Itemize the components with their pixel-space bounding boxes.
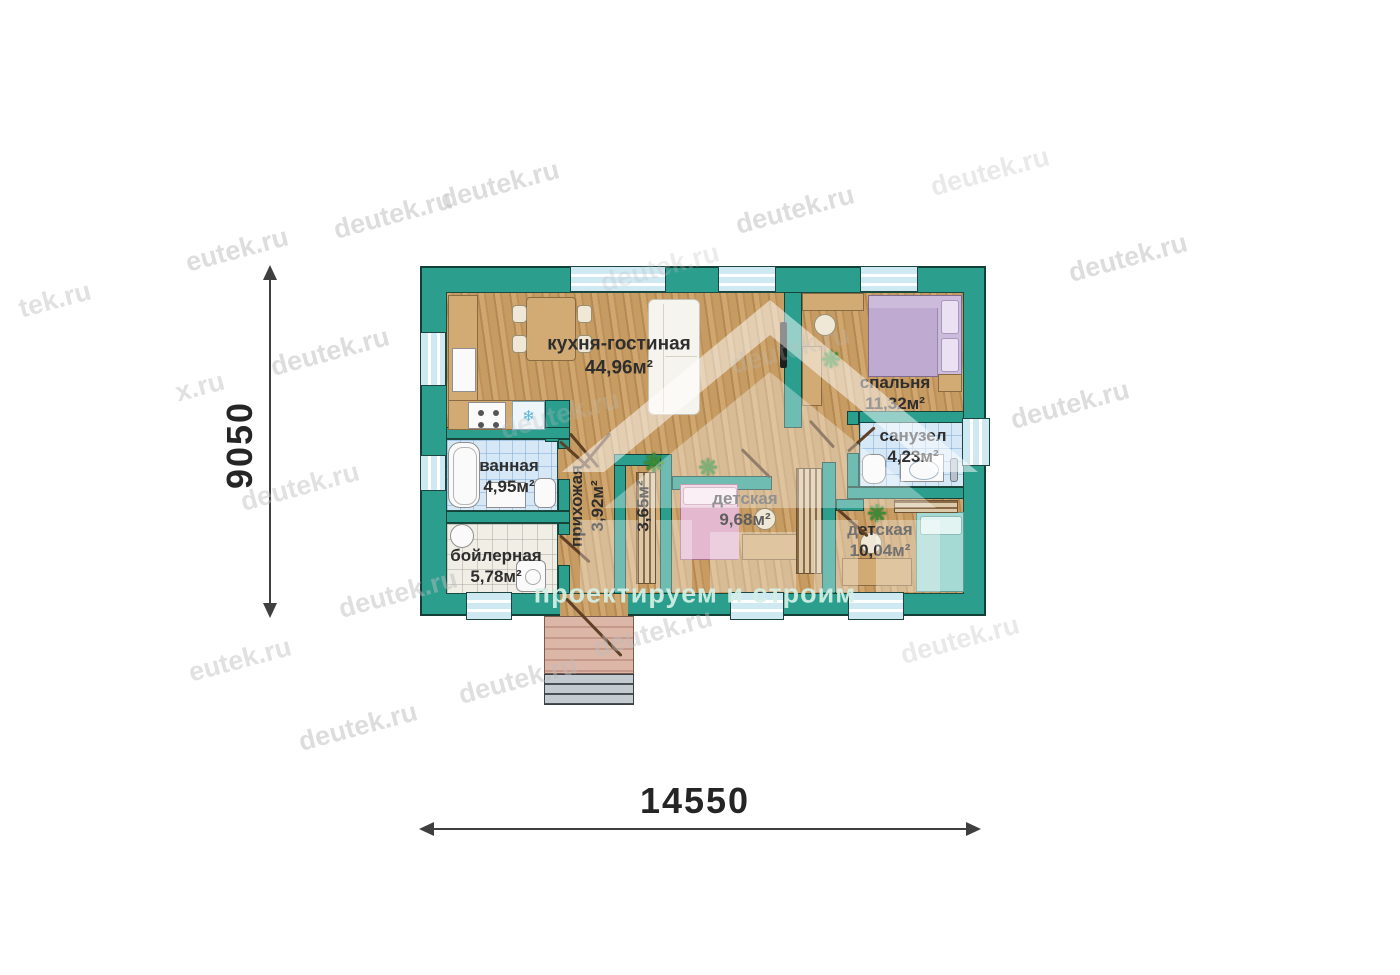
- dimension-height: 9050: [219, 401, 261, 489]
- window: [730, 592, 784, 620]
- watermark-text: deutek.ru: [897, 609, 1022, 670]
- watermark-text: deutek.ru: [1065, 227, 1190, 288]
- wall-wc-left-a: [847, 411, 859, 425]
- desk: [802, 293, 864, 311]
- dimension-width: 14550: [640, 780, 750, 822]
- window: [718, 266, 776, 292]
- room-label-kids1: детская9,68м²: [712, 488, 777, 531]
- plant-icon: ❋: [821, 346, 841, 374]
- chair: [814, 314, 836, 336]
- window: [420, 455, 446, 491]
- wall-kids1-right: [822, 462, 836, 594]
- bed: [916, 512, 964, 592]
- stove-icon: [468, 402, 506, 429]
- window: [420, 332, 446, 386]
- wardrobe: [796, 468, 822, 574]
- shower-stand: [950, 458, 958, 482]
- porch-steps: [544, 674, 634, 705]
- room-label-bedroom: спальня11,32м²: [860, 372, 931, 415]
- arrow-left-icon: [419, 822, 434, 836]
- house-outline: ❄: [420, 266, 986, 616]
- room-label-boiler: бойлерная5,78м²: [450, 545, 541, 588]
- bed: [868, 295, 962, 377]
- room-label-closet: 3,65м²: [632, 480, 653, 531]
- floor-plan-page: ❄: [0, 0, 1400, 975]
- arrow-up-icon: [263, 265, 277, 280]
- room-label-wc: санузел4,23м²: [879, 425, 946, 468]
- tv: [780, 322, 787, 368]
- room-name: кухня-гостиная: [547, 332, 690, 356]
- window: [848, 592, 904, 620]
- sink: [452, 348, 476, 392]
- watermark-text: deutek.ru: [437, 154, 562, 215]
- snowflake-icon: ❄: [522, 408, 535, 425]
- watermark-text: eutek.ru: [185, 631, 294, 688]
- wall-wc-bottom: [847, 487, 964, 499]
- wall-hall-closet: [614, 454, 626, 594]
- nightstand: [938, 374, 962, 392]
- arrow-right-icon: [966, 822, 981, 836]
- chair: [512, 305, 527, 323]
- watermark-text: deutek.ru: [1007, 374, 1132, 435]
- plant-icon: ❋: [698, 454, 718, 482]
- hall-cabinet: [802, 346, 822, 406]
- watermark-text: deutek.ru: [732, 179, 857, 240]
- watermark-text: deutek.ru: [267, 321, 392, 382]
- watermark-text: deutek.ru: [295, 696, 420, 757]
- room-label-hallway: прихожая3,92м²: [566, 465, 609, 547]
- chair: [577, 305, 592, 323]
- window: [860, 266, 918, 292]
- fridge-icon: ❄: [512, 401, 545, 430]
- room-label-bath: ванная4,95м²: [479, 455, 539, 498]
- window: [962, 418, 990, 466]
- dimension-line-vertical: [269, 278, 271, 604]
- wall-boiler-right-b: [558, 565, 570, 594]
- bathtub: [448, 442, 480, 508]
- radiator: [894, 500, 958, 513]
- watermark-text: deutek.ru: [927, 141, 1052, 202]
- room-label-kitchen-living: кухня-гостиная 44,96м²: [547, 332, 690, 380]
- wall-wc-left-b: [847, 453, 859, 487]
- desk: [842, 558, 912, 586]
- wall-bath-bottom: [446, 511, 570, 523]
- watermark-text: deutek.ru: [330, 184, 455, 245]
- room-area: 44,96м²: [547, 356, 690, 380]
- dimension-line-horizontal: [433, 828, 967, 830]
- chair: [512, 335, 527, 353]
- window: [570, 266, 666, 292]
- arrow-down-icon: [263, 603, 277, 618]
- window: [466, 592, 512, 620]
- watermark-text: tek.ru: [15, 276, 94, 325]
- plant-icon: ❋: [643, 449, 665, 479]
